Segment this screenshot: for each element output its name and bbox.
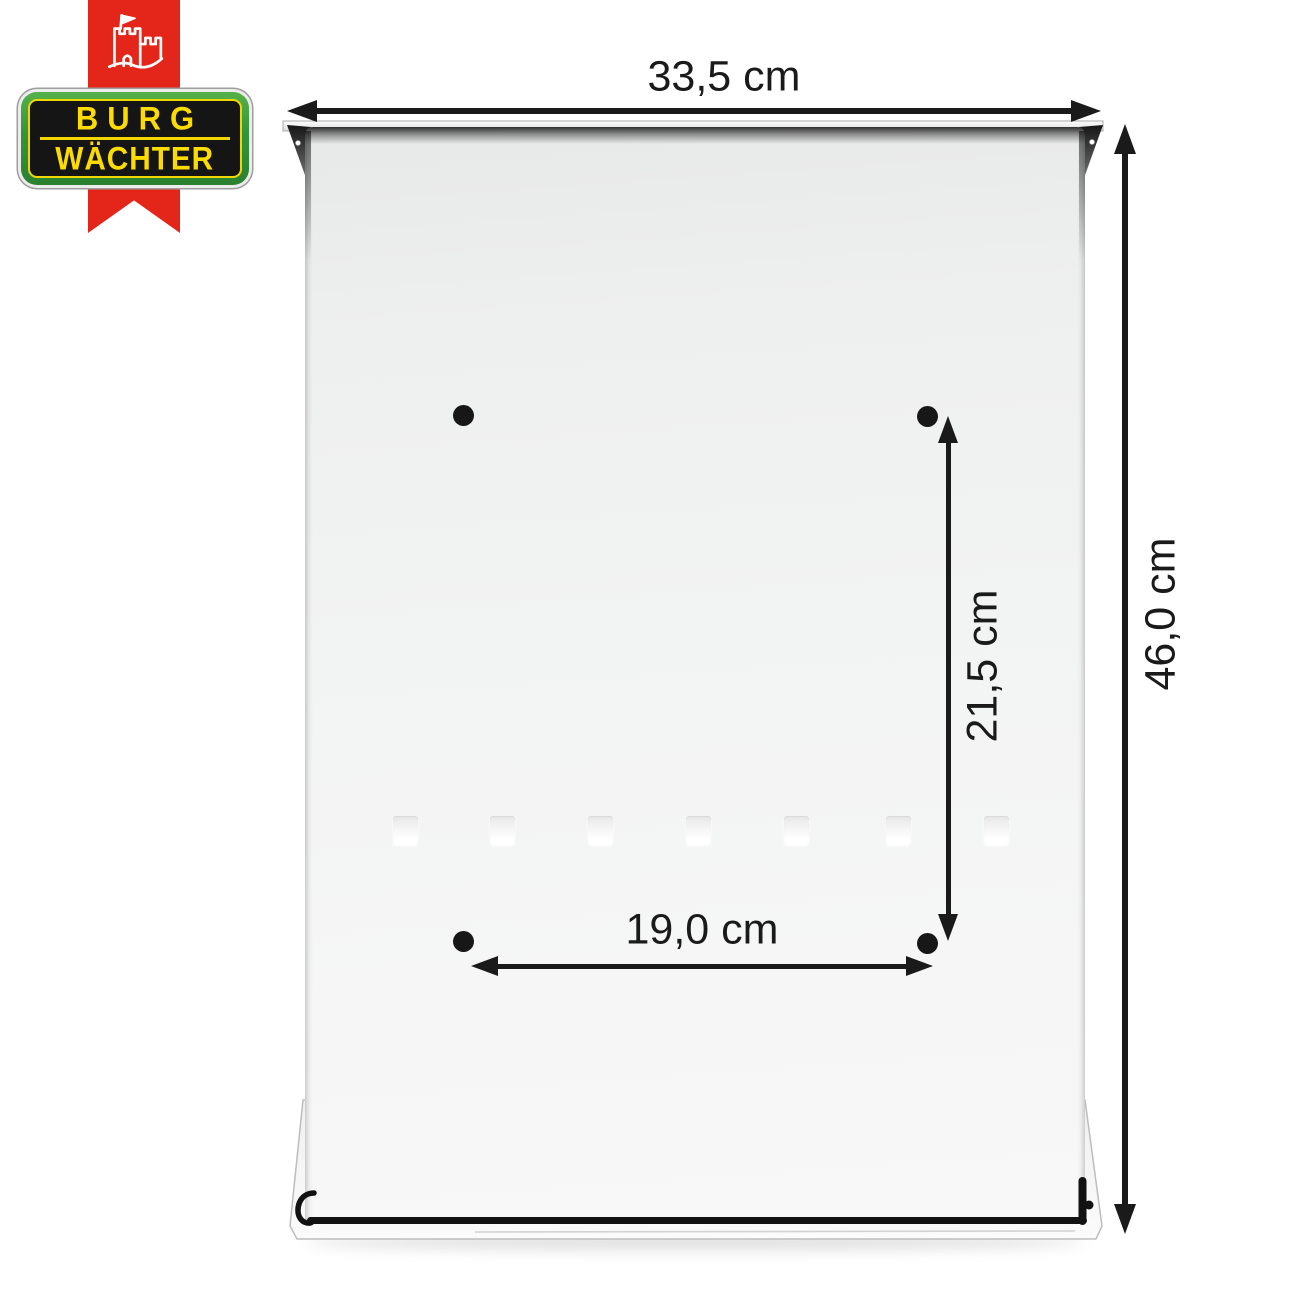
right-latch-bar	[1079, 1177, 1087, 1225]
dimension-line	[946, 433, 951, 924]
arrowhead-up-icon	[938, 413, 958, 443]
product-dimension-diagram: BURG WÄCHTER	[0, 0, 1300, 1300]
mounting-hole-bottom-left	[453, 931, 474, 952]
overall-height-dimension-arrow	[1112, 121, 1138, 1237]
mounting-hole-top-left	[453, 405, 474, 426]
bottom-rail-group	[0, 0, 1300, 1300]
hole-spacing-vertical-label: 21,5 cm	[959, 590, 1008, 743]
dimension-line	[306, 108, 1082, 114]
arrowhead-left-icon	[284, 100, 317, 122]
hole-spacing-horizontal-label: 19,0 cm	[626, 906, 779, 955]
overall-height-label: 46,0 cm	[1137, 538, 1186, 691]
hole-spacing-horizontal-dimension-arrow	[468, 954, 936, 978]
hole-spacing-vertical-dimension-arrow	[935, 413, 961, 944]
right-latch-dot	[1085, 1201, 1094, 1210]
arrowhead-right-icon	[1071, 100, 1104, 122]
arrowhead-up-icon	[1114, 121, 1136, 154]
flange-seam	[475, 1231, 1075, 1232]
overall-width-dimension-arrow	[284, 99, 1104, 123]
arrowhead-left-icon	[468, 956, 498, 976]
arrowhead-down-icon	[938, 914, 958, 944]
dimension-line	[488, 964, 916, 969]
overall-width-label: 33,5 cm	[648, 53, 801, 102]
bottom-rail	[307, 1217, 1087, 1224]
arrowhead-down-icon	[1114, 1204, 1136, 1237]
dimension-line	[1122, 143, 1128, 1215]
arrowhead-right-icon	[906, 956, 936, 976]
